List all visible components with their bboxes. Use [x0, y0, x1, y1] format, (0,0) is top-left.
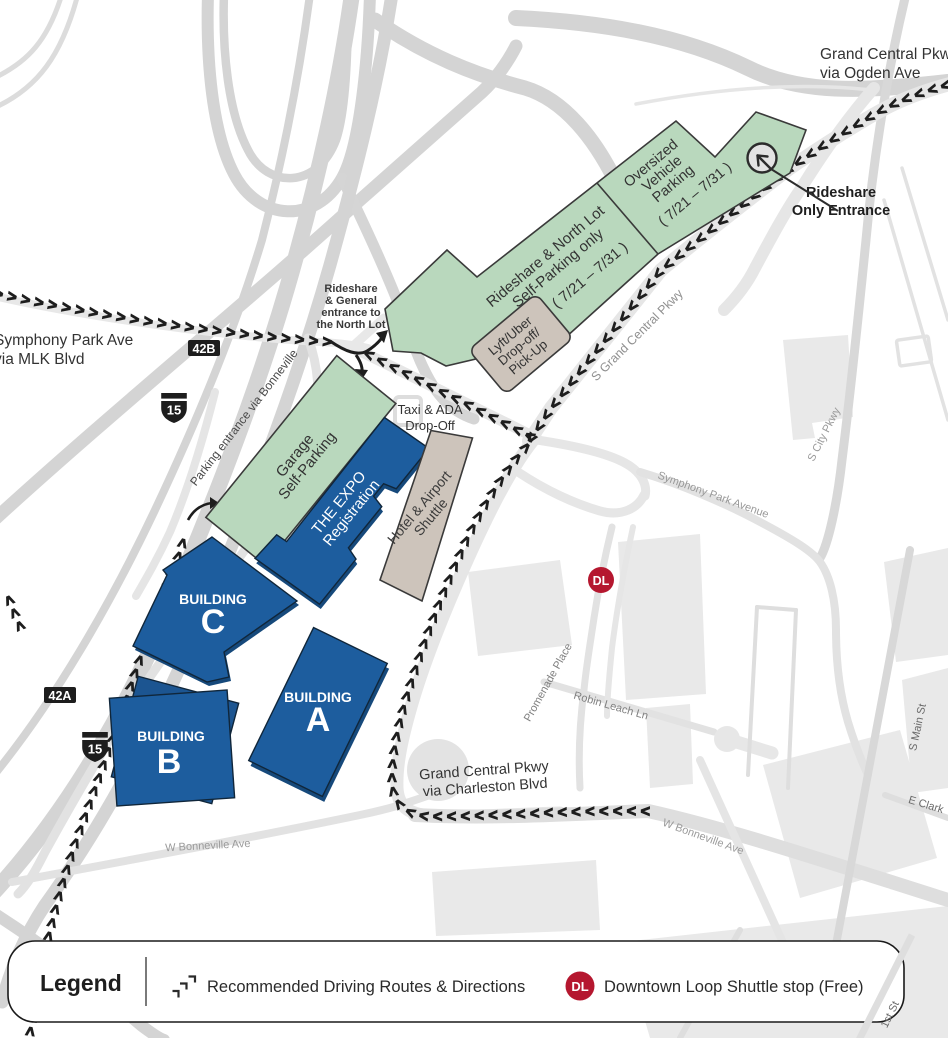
svg-text:42B: 42B	[193, 342, 216, 356]
svg-text:B: B	[157, 743, 182, 781]
svg-text:15: 15	[167, 403, 181, 418]
svg-text:via MLK Blvd: via MLK Blvd	[0, 351, 84, 368]
svg-text:& General: & General	[325, 295, 377, 307]
svg-text:A: A	[306, 701, 331, 739]
svg-text:Taxi & ADA: Taxi & ADA	[397, 402, 462, 417]
svg-text:Recommended Driving Routes & D: Recommended Driving Routes & Directions	[207, 978, 525, 996]
svg-text:Drop-Off: Drop-Off	[405, 418, 455, 433]
svg-text:the North Lot: the North Lot	[316, 319, 385, 331]
svg-text:15: 15	[88, 742, 102, 757]
svg-text:Grand Central Pkwy: Grand Central Pkwy	[820, 46, 948, 63]
svg-text:Downtown Loop Shuttle stop (Fr: Downtown Loop Shuttle stop (Free)	[604, 978, 864, 996]
svg-text:42A: 42A	[49, 689, 72, 703]
svg-text:DL: DL	[593, 574, 610, 588]
svg-text:Legend: Legend	[40, 970, 122, 996]
svg-text:Rideshare: Rideshare	[324, 283, 377, 295]
svg-text:BUILDING: BUILDING	[137, 728, 205, 744]
svg-text:via Ogden Ave: via Ogden Ave	[820, 65, 921, 82]
svg-text:Only Entrance: Only Entrance	[792, 203, 890, 219]
svg-text:entrance to: entrance to	[321, 307, 381, 319]
svg-text:C: C	[201, 603, 226, 641]
svg-text:DL: DL	[571, 979, 588, 994]
svg-text:Symphony Park Ave: Symphony Park Ave	[0, 332, 133, 349]
